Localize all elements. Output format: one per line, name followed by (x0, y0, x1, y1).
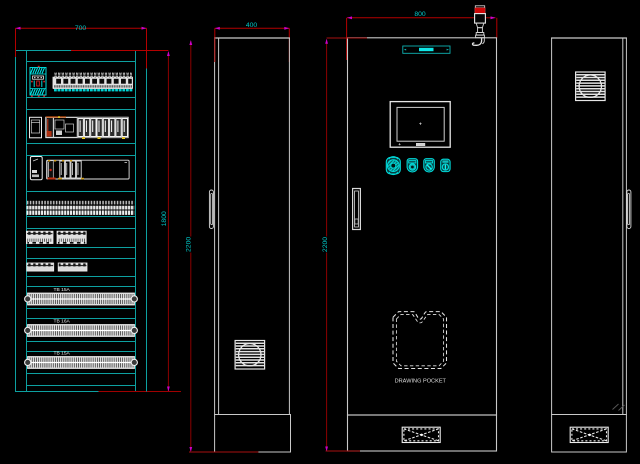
svg-text:700: 700 (75, 25, 87, 32)
svg-text:TB 15A: TB 15A (54, 351, 71, 357)
svg-text:800: 800 (414, 11, 426, 18)
svg-text:400: 400 (246, 22, 258, 29)
svg-text:TB 16A: TB 16A (54, 319, 71, 325)
svg-text:1800: 1800 (161, 211, 168, 226)
svg-text:DRAWING POCKET: DRAWING POCKET (395, 379, 447, 385)
svg-text:2200: 2200 (185, 237, 192, 252)
svg-text:2200: 2200 (322, 237, 329, 252)
svg-text:TB 15A: TB 15A (54, 287, 71, 293)
